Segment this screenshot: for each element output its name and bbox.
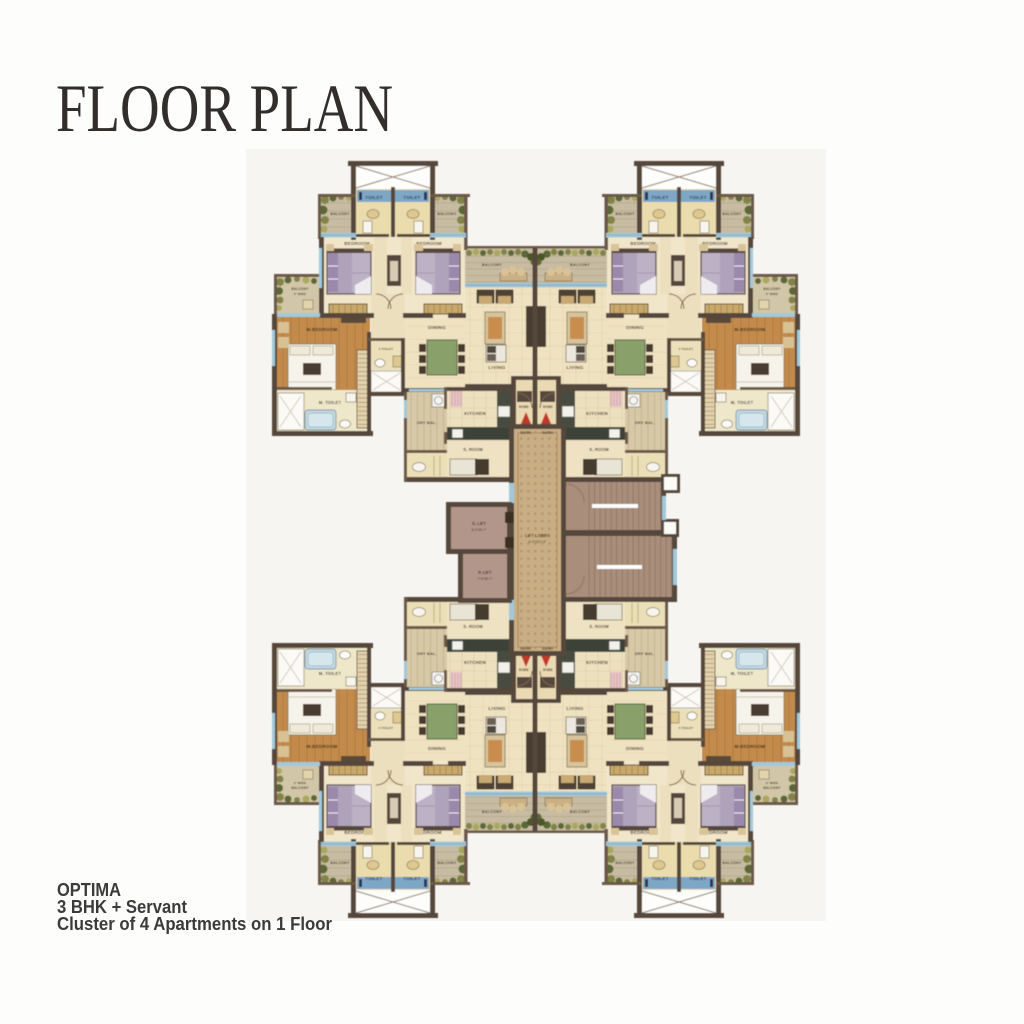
svg-text:8'-2"X6'-7": 8'-2"X6'-7"	[472, 528, 487, 532]
svg-text:TOILET: TOILET	[365, 876, 382, 881]
svg-text:KITCHEN: KITCHEN	[464, 660, 486, 665]
svg-text:BALCONY: BALCONY	[722, 212, 742, 216]
svg-text:TOILET: TOILET	[403, 876, 420, 881]
svg-text:BALCONY: BALCONY	[437, 212, 457, 216]
svg-text:TOILET: TOILET	[403, 195, 420, 200]
svg-text:TOILET: TOILET	[651, 876, 668, 881]
svg-text:DINING: DINING	[428, 746, 446, 752]
svg-text:BALCONY: BALCONY	[763, 287, 781, 291]
svg-text:8'-0"X37'-5": 8'-0"X37'-5"	[529, 540, 547, 544]
svg-text:M.BEDROOM: M.BEDROOM	[307, 327, 338, 332]
svg-text:BALCONY: BALCONY	[482, 810, 502, 814]
svg-text:F.TOILET: F.TOILET	[379, 726, 394, 730]
svg-text:BALCONY: BALCONY	[570, 263, 590, 267]
svg-text:TOILET: TOILET	[689, 195, 706, 200]
svg-text:LIVING: LIVING	[488, 365, 505, 371]
svg-text:S. ROOM: S. ROOM	[463, 447, 483, 452]
svg-text:BALCONY: BALCONY	[570, 810, 590, 814]
svg-text:BALCONY: BALCONY	[763, 786, 781, 790]
svg-text:4' WIDE: 4' WIDE	[294, 781, 306, 785]
svg-text:DINING: DINING	[626, 325, 644, 331]
svg-text:KITCHEN: KITCHEN	[586, 660, 608, 665]
svg-text:S. ROOM: S. ROOM	[589, 447, 609, 452]
svg-text:LIFT LOBBY: LIFT LOBBY	[525, 533, 550, 538]
svg-text:S. ROOM: S. ROOM	[589, 624, 609, 629]
svg-text:F.TOILET: F.TOILET	[679, 347, 694, 351]
svg-text:4' WIDE: 4' WIDE	[294, 292, 306, 296]
svg-text:FLOOR PLAN: FLOOR PLAN	[56, 70, 393, 146]
svg-text:LIVING: LIVING	[566, 706, 583, 712]
svg-text:M.BEDROOM: M.BEDROOM	[735, 744, 766, 749]
svg-text:ENTRY: ENTRY	[543, 431, 555, 435]
svg-text:DINING: DINING	[428, 325, 446, 331]
svg-text:S. LIFT: S. LIFT	[472, 521, 486, 526]
svg-text:7'-5"X6'-7": 7'-5"X6'-7"	[478, 577, 493, 581]
svg-text:BALCONY: BALCONY	[330, 861, 350, 865]
svg-text:KITCHEN: KITCHEN	[464, 411, 486, 416]
svg-text:DRY BAL.: DRY BAL.	[417, 420, 437, 425]
svg-text:TOILET: TOILET	[689, 876, 706, 881]
svg-text:BALCONY: BALCONY	[615, 861, 635, 865]
svg-text:4' WIDE: 4' WIDE	[766, 781, 778, 785]
svg-text:ROBE: ROBE	[543, 668, 553, 672]
svg-text:LIVING: LIVING	[488, 706, 505, 712]
svg-text:BALCONY: BALCONY	[330, 212, 350, 216]
svg-text:ENTRY: ENTRY	[543, 647, 555, 651]
svg-text:M. TOILET: M. TOILET	[319, 400, 342, 405]
svg-text:DRY BAL.: DRY BAL.	[635, 420, 655, 425]
svg-text:DRY BAL.: DRY BAL.	[635, 651, 655, 656]
svg-text:BALCONY: BALCONY	[291, 287, 309, 291]
svg-text:S. ROOM: S. ROOM	[463, 624, 483, 629]
svg-text:M. TOILET: M. TOILET	[731, 400, 754, 405]
svg-text:ENTRY: ENTRY	[521, 431, 533, 435]
svg-text:BALCONY: BALCONY	[437, 861, 457, 865]
svg-text:M.BEDROOM: M.BEDROOM	[735, 327, 766, 332]
svg-text:KITCHEN: KITCHEN	[586, 411, 608, 416]
svg-text:ROBE: ROBE	[519, 668, 529, 672]
svg-text:4' WIDE: 4' WIDE	[766, 292, 778, 296]
svg-text:ENTRY: ENTRY	[521, 647, 533, 651]
svg-text:TOILET: TOILET	[365, 195, 382, 200]
svg-text:M.BEDROOM: M.BEDROOM	[307, 744, 338, 749]
svg-text:P. LIFT: P. LIFT	[478, 570, 492, 575]
svg-text:Cluster of 4 Apartments on 1 F: Cluster of 4 Apartments on 1 Floor	[57, 914, 332, 934]
svg-text:ROBE: ROBE	[519, 405, 529, 409]
svg-text:LIVING: LIVING	[566, 365, 583, 371]
svg-text:BALCONY: BALCONY	[722, 861, 742, 865]
svg-text:M. TOILET: M. TOILET	[731, 671, 754, 676]
svg-text:DINING: DINING	[626, 746, 644, 752]
svg-text:DRY BAL.: DRY BAL.	[417, 651, 437, 656]
svg-text:ROBE: ROBE	[543, 405, 553, 409]
svg-text:BALCONY: BALCONY	[291, 786, 309, 790]
svg-text:M. TOILET: M. TOILET	[319, 671, 342, 676]
svg-text:F.TOILET: F.TOILET	[679, 726, 694, 730]
svg-text:BALCONY: BALCONY	[615, 212, 635, 216]
svg-text:BALCONY: BALCONY	[482, 263, 502, 267]
svg-text:F.TOILET: F.TOILET	[379, 347, 394, 351]
svg-text:TOILET: TOILET	[651, 195, 668, 200]
